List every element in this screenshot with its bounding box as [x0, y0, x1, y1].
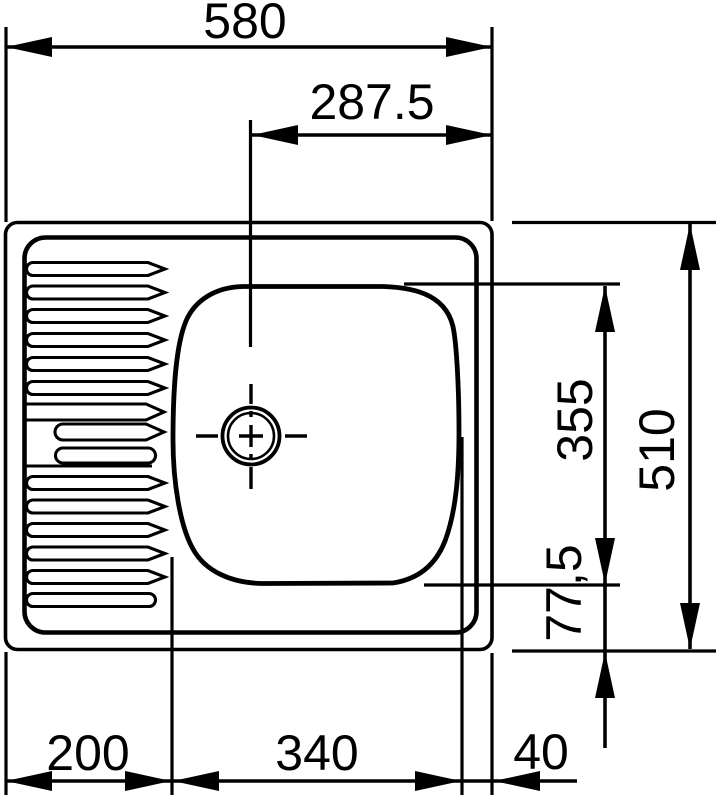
drainboard-ribs [25, 263, 165, 607]
drainboard-rib [27, 547, 166, 560]
dimension-overall-depth: 510 [629, 224, 700, 649]
arrowhead-up [595, 286, 615, 332]
arrowhead-down [680, 603, 700, 649]
drainboard-rib [27, 263, 166, 276]
drainboard-rib [27, 334, 166, 347]
drainboard-rib [27, 477, 166, 490]
drainboard-rib [27, 571, 166, 584]
arrowhead-right [125, 771, 171, 791]
drainboard-rib-middle-section [25, 404, 164, 466]
arrowhead-down [595, 538, 615, 584]
dim-bowl-front-offset-label: 77,5 [536, 544, 592, 641]
drainboard-rib [27, 524, 166, 537]
technical-drawing-page: 580 287.5 355 77,5 510 200 340 [0, 0, 716, 800]
arrowhead-right [446, 37, 492, 57]
drainboard-rib [27, 500, 166, 513]
arrowhead-left [252, 125, 298, 145]
dimension-overall-width: 580 [6, 0, 492, 57]
dim-drain-offset-label: 287.5 [309, 74, 434, 130]
arrowhead-right [415, 771, 461, 791]
dim-overall-width-label: 580 [203, 0, 286, 49]
arrowhead-up [595, 652, 615, 698]
arrowhead-up [680, 224, 700, 270]
drainboard-rib [27, 594, 156, 607]
drainboard-rib [27, 286, 166, 299]
drainboard-rib [27, 358, 166, 371]
dimension-drain-offset: 287.5 [252, 74, 492, 145]
dim-drainer-width-label: 200 [46, 725, 129, 781]
drainboard-rib [27, 382, 166, 395]
sink-technical-drawing: 580 287.5 355 77,5 510 200 340 [0, 0, 716, 800]
drain-center-mark [196, 384, 307, 489]
arrowhead-left [173, 771, 219, 791]
drainboard-rib [27, 310, 166, 323]
arrowhead-right [446, 125, 492, 145]
arrowhead-left [6, 771, 52, 791]
dim-bowl-length-label: 355 [547, 378, 603, 461]
sink-body [6, 223, 493, 650]
dim-right-margin-label: 40 [513, 724, 569, 780]
dim-bowl-width-label: 340 [275, 725, 358, 781]
arrowhead-left [6, 37, 52, 57]
dim-overall-depth-label: 510 [629, 408, 685, 491]
drain [196, 384, 307, 489]
